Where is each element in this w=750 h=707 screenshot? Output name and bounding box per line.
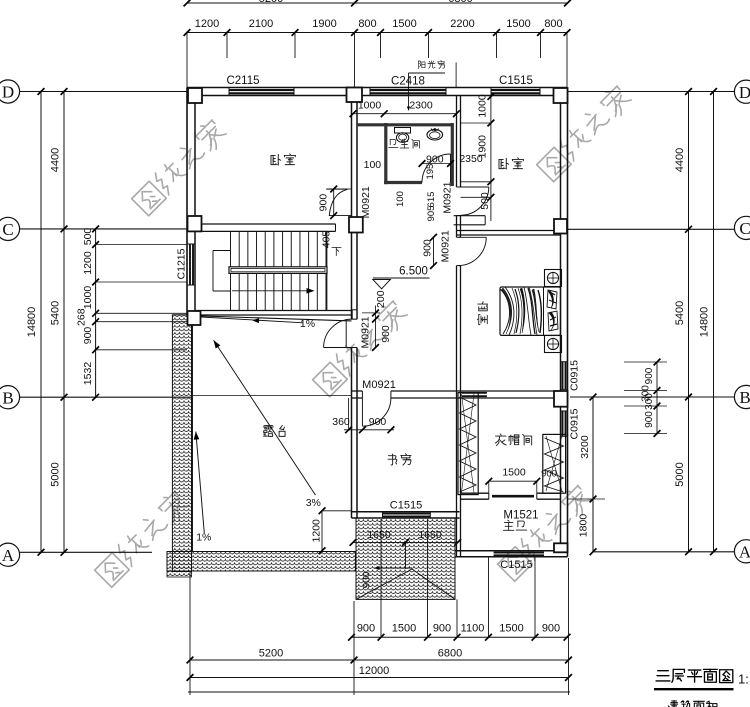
svg-text:5200: 5200 (259, 647, 283, 659)
svg-text:1900: 1900 (312, 18, 336, 30)
svg-text:5000: 5000 (49, 462, 61, 486)
svg-text:200: 200 (375, 290, 387, 308)
svg-text:1000: 1000 (358, 99, 382, 111)
svg-text:1%: 1% (300, 318, 315, 330)
svg-text:M0921: M0921 (359, 316, 371, 348)
svg-text:B: B (2, 388, 13, 407)
svg-text:1500: 1500 (502, 466, 526, 478)
svg-text:900: 900 (644, 367, 655, 384)
svg-text:5200: 5200 (259, 0, 283, 5)
svg-text:900: 900 (433, 622, 451, 634)
svg-text:4400: 4400 (49, 148, 61, 172)
svg-text:300: 300 (644, 393, 655, 410)
svg-text:D: D (2, 83, 14, 102)
svg-text:405: 405 (320, 231, 332, 249)
svg-text:500: 500 (82, 228, 94, 246)
svg-text:1532: 1532 (82, 362, 94, 386)
svg-text:360: 360 (332, 416, 350, 428)
svg-text:900: 900 (644, 411, 655, 428)
svg-text:1200: 1200 (311, 519, 323, 543)
svg-text:14800: 14800 (26, 307, 38, 338)
svg-text:900: 900 (380, 325, 392, 343)
svg-text:900: 900 (357, 622, 375, 634)
svg-text:900: 900 (541, 468, 557, 479)
svg-text:1500: 1500 (392, 622, 416, 634)
svg-text:C2418: C2418 (391, 75, 425, 87)
svg-text:100: 100 (364, 159, 382, 171)
svg-text:195: 195 (425, 164, 436, 180)
svg-text:905: 905 (426, 206, 437, 222)
svg-text:4400: 4400 (674, 148, 686, 172)
svg-text:1000: 1000 (82, 286, 94, 310)
svg-text:2200: 2200 (450, 18, 474, 30)
svg-text:1100: 1100 (461, 622, 485, 634)
svg-text:900: 900 (82, 327, 94, 345)
svg-text:1200: 1200 (82, 251, 94, 275)
svg-text:M0921: M0921 (442, 181, 454, 213)
svg-text:3200: 3200 (579, 435, 591, 459)
svg-text:C1515: C1515 (390, 500, 422, 512)
svg-text:14800: 14800 (698, 307, 710, 338)
svg-text:6800: 6800 (438, 647, 462, 659)
svg-text:C1515: C1515 (500, 559, 532, 571)
svg-text:1:100: 1:100 (738, 672, 750, 687)
svg-text:1800: 1800 (577, 514, 589, 538)
svg-text:C2115: C2115 (226, 75, 259, 87)
svg-text:1650: 1650 (367, 529, 391, 541)
svg-text:900: 900 (369, 416, 387, 428)
svg-text:M0921: M0921 (362, 379, 396, 391)
svg-text:C0915: C0915 (568, 360, 580, 391)
svg-text:900: 900 (421, 239, 433, 257)
svg-text:12000: 12000 (359, 665, 390, 677)
svg-text:D: D (739, 83, 750, 102)
svg-text:M0921: M0921 (440, 230, 452, 262)
svg-text:800: 800 (544, 18, 562, 30)
svg-text:3%: 3% (306, 497, 321, 509)
svg-text:1500: 1500 (392, 18, 416, 30)
svg-text:M1521: M1521 (503, 510, 538, 522)
svg-text:1650: 1650 (418, 529, 442, 541)
svg-text:B: B (739, 388, 750, 407)
svg-text:900: 900 (362, 571, 373, 588)
svg-text:5400: 5400 (674, 301, 686, 325)
svg-text:A: A (739, 542, 750, 561)
svg-text:1900: 1900 (477, 135, 489, 159)
svg-text:C: C (2, 220, 13, 239)
svg-text:5400: 5400 (49, 301, 61, 325)
svg-text:1200: 1200 (195, 18, 219, 30)
svg-text:2100: 2100 (249, 18, 273, 30)
svg-text:900: 900 (317, 194, 329, 212)
svg-text:1%: 1% (196, 531, 211, 543)
svg-text:C: C (739, 219, 750, 238)
svg-text:C1515: C1515 (499, 75, 533, 87)
svg-text:1500: 1500 (499, 622, 523, 634)
svg-text:6.500: 6.500 (399, 265, 428, 277)
svg-text:1500: 1500 (506, 18, 530, 30)
svg-text:6800: 6800 (448, 0, 472, 5)
svg-text:900: 900 (542, 622, 560, 634)
svg-text:100: 100 (395, 191, 406, 207)
svg-text:C1215: C1215 (175, 248, 187, 279)
svg-text:500: 500 (479, 192, 491, 210)
svg-text:C0915: C0915 (568, 408, 580, 439)
svg-text:M0921: M0921 (360, 186, 372, 218)
svg-text:268: 268 (75, 308, 87, 326)
svg-text:615: 615 (426, 192, 437, 208)
svg-text:5000: 5000 (674, 462, 686, 486)
svg-text:1000: 1000 (477, 94, 489, 118)
svg-text:A: A (2, 546, 15, 565)
svg-text:800: 800 (358, 18, 376, 30)
svg-text:2300: 2300 (409, 99, 433, 111)
